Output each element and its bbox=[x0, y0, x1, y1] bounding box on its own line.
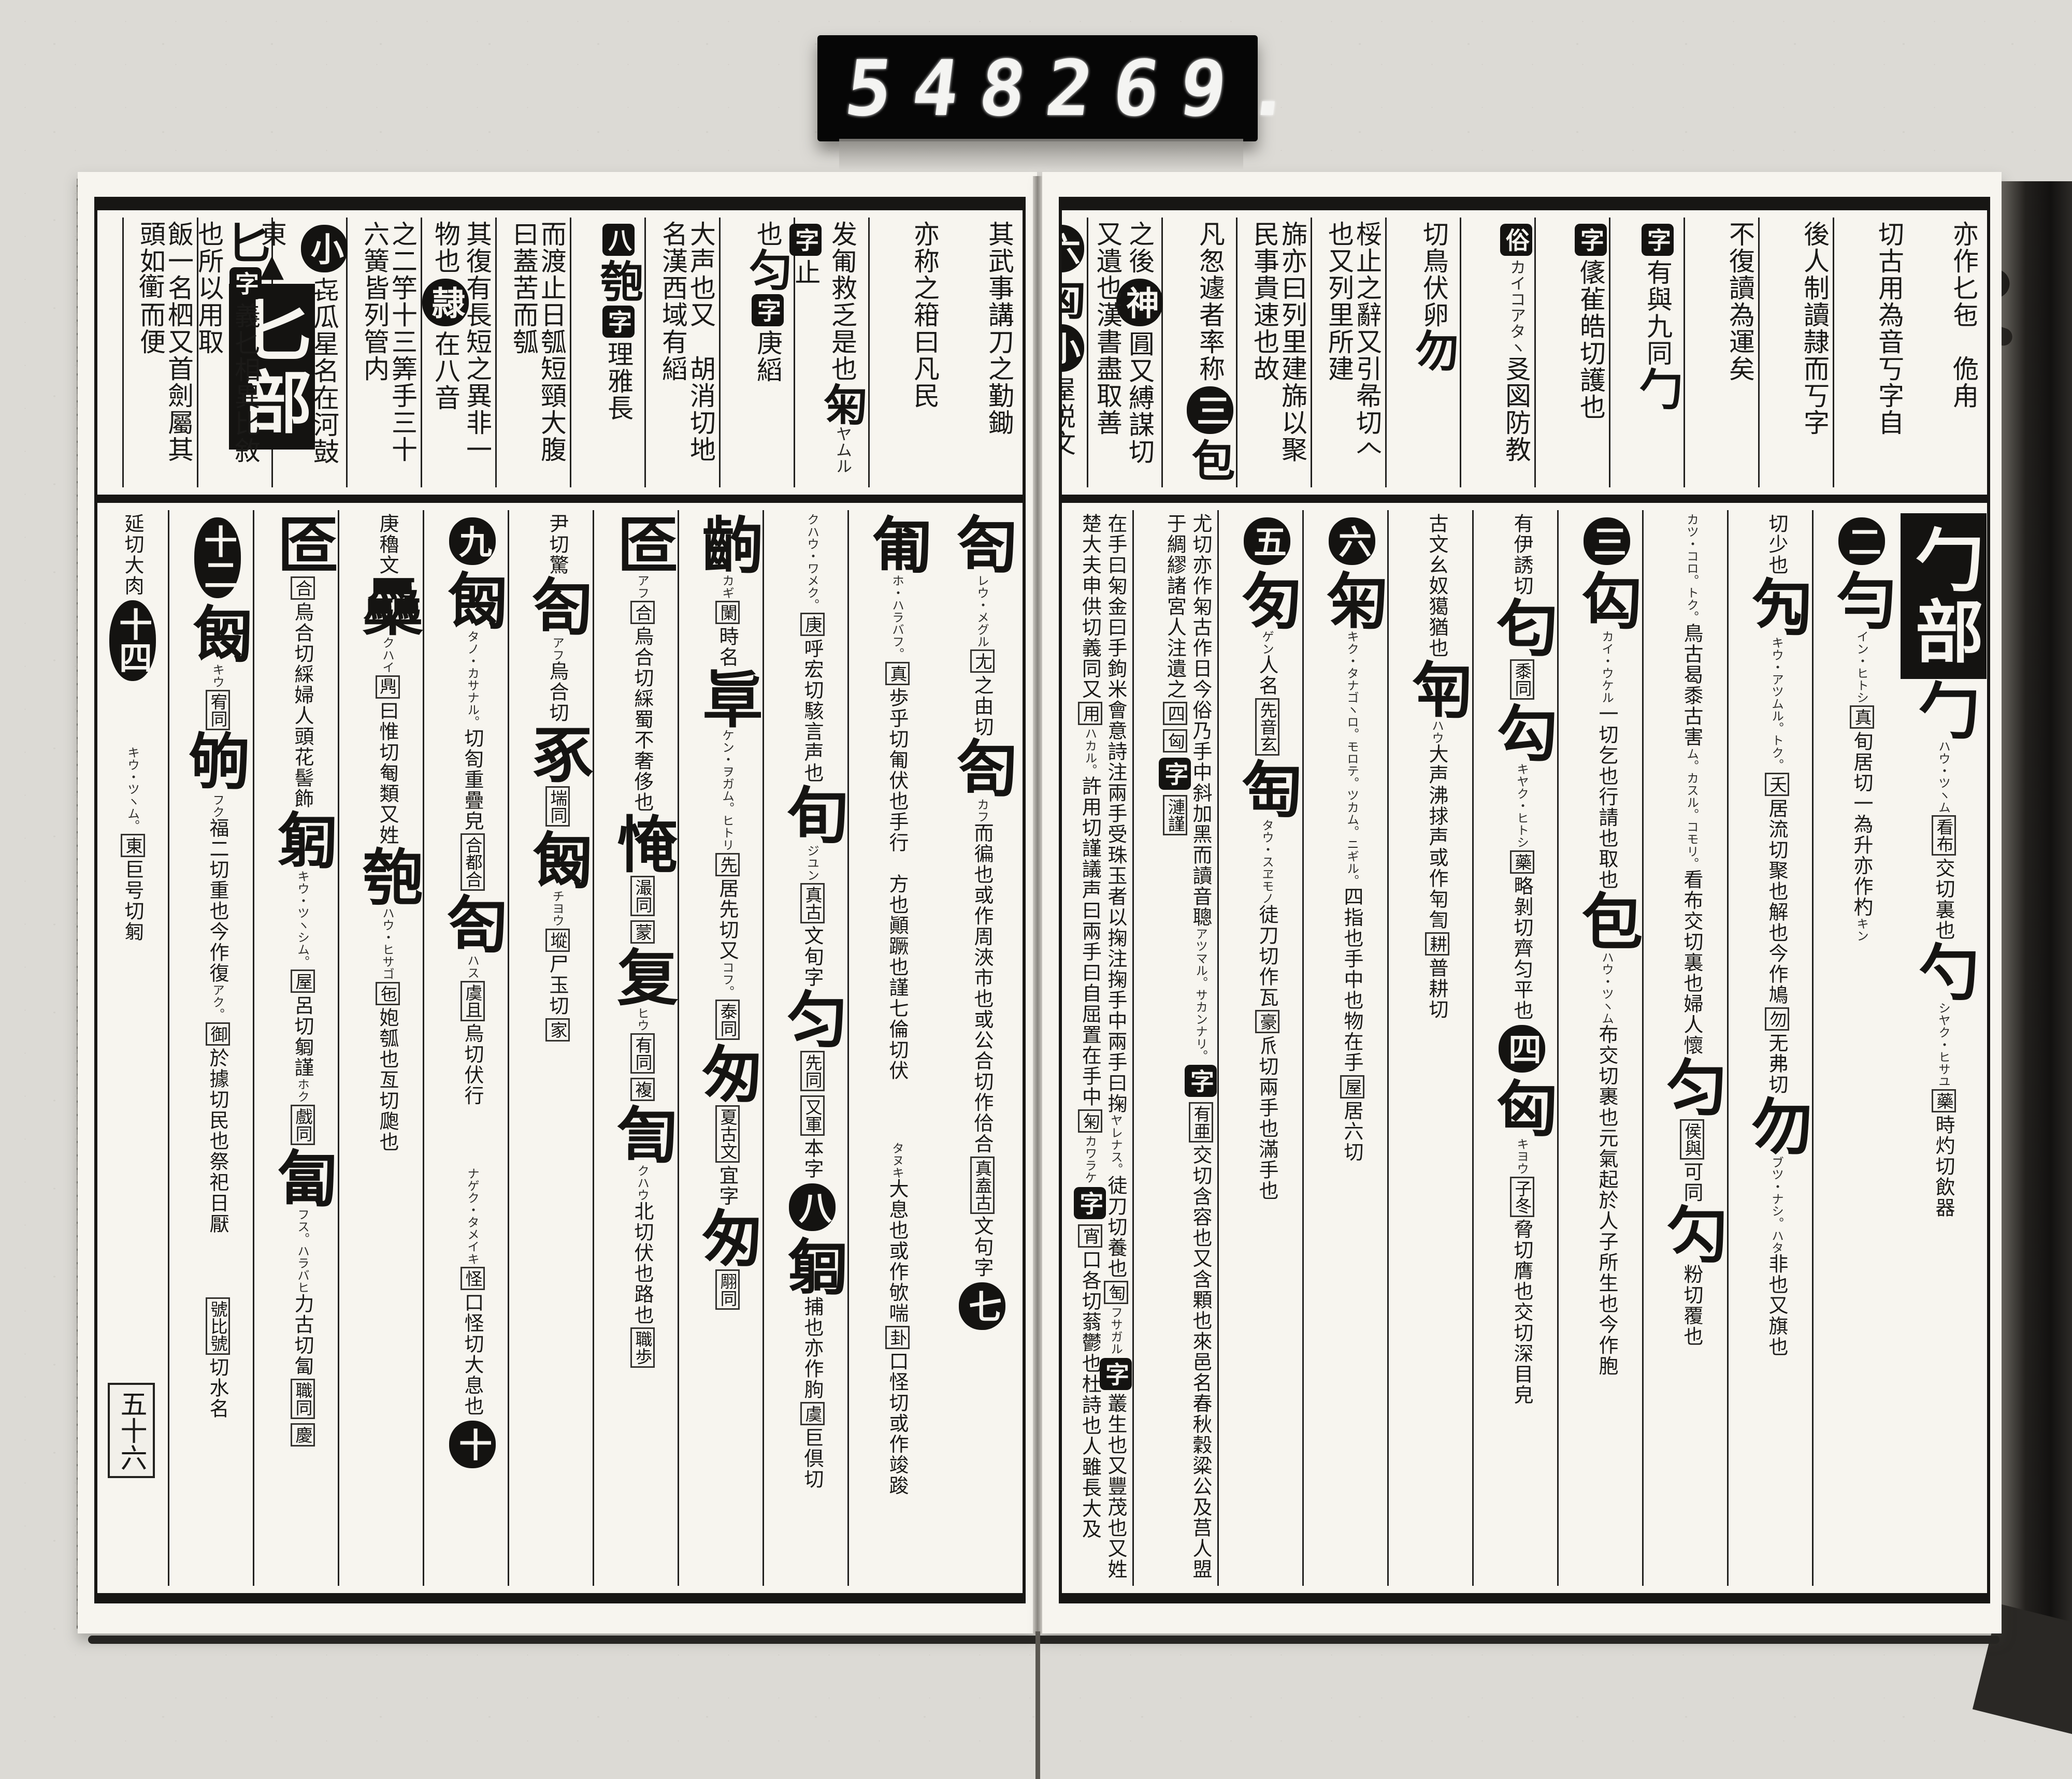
headword: 匊 bbox=[817, 382, 868, 426]
text-column: 亦称之䈤曰凡民 bbox=[868, 218, 943, 487]
kana-gloss: ハウ bbox=[1430, 719, 1444, 744]
folio-number: 五十六 bbox=[108, 1383, 155, 1478]
kana-gloss: ヤムル bbox=[833, 426, 852, 474]
gloss-text: 庚穭文 bbox=[376, 513, 399, 575]
kana-gloss: アフ bbox=[550, 637, 565, 661]
kana-gloss: レウ・メグル bbox=[975, 574, 989, 647]
text-column: 字㒅雈皓切護也 bbox=[1534, 218, 1609, 487]
headword: 包 bbox=[1185, 438, 1235, 482]
kana-gloss: キウ・ツヽシム。 bbox=[295, 870, 310, 967]
gloss-text: 有與九同 bbox=[1643, 259, 1673, 367]
text-column: 十二匓キウ宥同𠣪フク福二切重也今作復アク。御於據切民也祭祀日厭𠤂號比號切水名 bbox=[168, 510, 253, 1586]
stroke-count-badge: 小 bbox=[301, 225, 348, 272]
gloss-text: 飯一名柶又首劍 bbox=[164, 221, 194, 409]
gloss-text: 口怪切大息也 bbox=[461, 1292, 484, 1416]
gloss-text: 許用切謹議声曰兩手曰自屈置在手中 bbox=[1078, 776, 1101, 1107]
headword: 旬 bbox=[776, 783, 848, 844]
variant-box: 屋 bbox=[291, 970, 315, 993]
gloss-text: 其武事講刀之勤鋤 bbox=[984, 221, 1014, 436]
text-column: 大声也又𦉻胡消切地名漢西域有縚 bbox=[644, 218, 719, 487]
gloss-text: 其復有長短之異非 bbox=[462, 221, 492, 436]
variant-box: 㙐同 bbox=[545, 786, 570, 827]
stroke-count-badge: 十四 bbox=[109, 600, 156, 681]
kana-gloss: タノ・カサナル。 bbox=[465, 630, 480, 728]
gloss-text: 布交切裹也元氣起於人子所生也今作胞 bbox=[1595, 1024, 1618, 1377]
variant-box: 耕 bbox=[1425, 932, 1449, 956]
text-column: 二勻イン・ヒトシ真旬居切一為升亦作杓キン bbox=[1812, 510, 1897, 1586]
gloss-text: 之二竽十三筭手三 bbox=[387, 221, 418, 436]
left-page-bottom-register: 匌レウ・メグル尢之由切匌カフ而徧也或作周浹市也或公合切作佮合真盍古文句字七匍ホ・… bbox=[97, 503, 1023, 1593]
gloss-text: 歩乎切匍伏也 bbox=[886, 687, 909, 812]
gloss-text: 旬居切一 bbox=[1850, 731, 1873, 814]
right-page-top-register: 亦作𠤎㐌𠤕佹甪切古用為音丂字自後人制讀隷而丂字不復讀為運矣字有與九同勹字㒅雈皓切… bbox=[1062, 210, 1987, 503]
kana-gloss: フサガル bbox=[1109, 1306, 1123, 1355]
kana-gloss: ジユン bbox=[805, 844, 819, 881]
variant-box: 泰同 bbox=[715, 1000, 740, 1040]
variant-box: 宥同 bbox=[206, 690, 230, 730]
gloss-text: 不復讀為運矣 bbox=[1725, 221, 1755, 382]
right-page: 亦作𠤎㐌𠤕佹甪切古用為音丂字自後人制讀隷而丂字不復讀為運矣字有與九同勹字㒅雈皓切… bbox=[1042, 172, 2002, 1633]
gloss-text: 婦人頭花髻飾 bbox=[291, 685, 314, 809]
kana-gloss: ム。カスル。コモリ。 bbox=[1685, 747, 1699, 870]
gloss-text: 徒刀切養也 bbox=[1104, 1175, 1127, 1279]
gloss-text: 受珠玉者以掬注掬手中兩手曰掬 bbox=[1104, 824, 1127, 1114]
variant-box: 又軍 bbox=[800, 1095, 825, 1136]
gloss-text: 屋説文 bbox=[1062, 376, 1076, 457]
text-column: 切古用為音丂字自 bbox=[1833, 218, 1907, 487]
kana-gloss: キヤク・ヒトシ bbox=[1515, 763, 1529, 848]
label-badge: 俗 bbox=[1500, 224, 1532, 256]
gloss-text: 尤切亦作匊古作日 bbox=[1189, 513, 1212, 679]
variant-box: 用 bbox=[1078, 702, 1102, 725]
gloss-text: 力古切匐 bbox=[291, 1294, 314, 1377]
text-column: 有伊誘切匂黍同勾キヤク・ヒトシ藥略剝切齊匀平也四匈キヨウ子冬脅切膺也交切深目皃 bbox=[1472, 510, 1557, 1586]
variant-box: 㵊同 bbox=[630, 876, 655, 916]
headword: 𠣪 bbox=[182, 732, 253, 793]
variant-box: 四 bbox=[1163, 702, 1187, 725]
text-column: 亦作𠤎㐌𠤕佹甪 bbox=[1907, 218, 1982, 487]
gloss-text: 也人雖長大及 bbox=[1078, 1415, 1101, 1540]
text-column: 桵止之辭又引㣇切𠆢也又列里所建 bbox=[1311, 218, 1385, 487]
kana-gloss: キン bbox=[1854, 917, 1869, 942]
gloss-text: 也 bbox=[753, 221, 783, 248]
right-page-text-block: 亦作𠤎㐌𠤕佹甪切古用為音丂字自後人制讀隷而丂字不復讀為運矣字有與九同勹字㒅雈皓切… bbox=[1059, 197, 1990, 1603]
headword: 匼 bbox=[607, 513, 678, 574]
gloss-text: 之由切 bbox=[971, 675, 994, 737]
headword: 𠣚 bbox=[437, 1106, 508, 1167]
headword: 匓 bbox=[437, 569, 508, 630]
variant-box: 合都合 bbox=[461, 833, 485, 891]
counter-shadow bbox=[839, 139, 1243, 170]
variant-box: 慶 bbox=[291, 1423, 315, 1447]
text-column: 八匏字理雅長 bbox=[570, 218, 644, 487]
kana-gloss: アツマル。サカンナリ。 bbox=[1193, 928, 1208, 1062]
variant-box: 卦 bbox=[885, 1326, 910, 1349]
gloss-text: 旆亦曰列里建旆 bbox=[1277, 221, 1307, 409]
gloss-text: 粉切覆也 bbox=[1680, 1264, 1703, 1347]
gloss-text: 庚縚 bbox=[753, 329, 783, 383]
gloss-text: 供切義同又 bbox=[1078, 596, 1101, 700]
gloss-text: 福二切重也今作復 bbox=[206, 818, 229, 983]
headword: 𠣫 bbox=[861, 1081, 933, 1142]
gloss-text: 口各切蓊鬱也杜詩 bbox=[1078, 1250, 1101, 1415]
label-badge: 字 bbox=[1185, 1065, 1217, 1097]
gloss-text: 烏合切綵 bbox=[631, 626, 654, 709]
kana-gloss: ケン・ヲガム。ヒトリ bbox=[720, 729, 735, 851]
stroke-count-badge: 六 bbox=[1062, 225, 1084, 272]
headword: 匓 bbox=[182, 602, 253, 663]
stroke-count-badge: 七 bbox=[959, 1282, 1005, 1330]
gloss-text: 今俗乃手中斜加 bbox=[1189, 679, 1212, 824]
text-column: 切少也勼キウ・アツムル。トク。夭居流切聚也解也今作鳩勿无弗切勿ブツ・ナシ。ハタ非… bbox=[1727, 510, 1812, 1586]
headword: 匀 bbox=[1656, 1056, 1728, 1117]
book-bottom-edge bbox=[88, 1636, 1999, 1644]
gloss-text: 為升亦作杓 bbox=[1850, 814, 1873, 917]
variant-box: 真 bbox=[885, 662, 910, 685]
variant-box: 蒙 bbox=[630, 920, 655, 944]
headword: 匏 bbox=[352, 846, 423, 907]
kana-gloss: キヨウ bbox=[1515, 1138, 1529, 1175]
gloss-text: 時名 bbox=[716, 626, 739, 668]
headword: 㤿 bbox=[607, 813, 678, 874]
gloss-text: 理雅長 bbox=[603, 341, 634, 422]
headword: 匕 bbox=[220, 221, 271, 264]
gloss-text: 烏合切 bbox=[546, 661, 569, 723]
headword: 匈 bbox=[1062, 277, 1086, 320]
gloss-text: 手行𠘹方也顚蹶也 bbox=[886, 812, 909, 977]
text-column: 飯一名柶又首劍屬其頭如𧘂而便 bbox=[122, 218, 197, 487]
kana-gloss: クハウ bbox=[635, 1164, 650, 1201]
gloss-text: 而徧也或作周浹市也或 bbox=[971, 823, 994, 1030]
gloss-text: 綢繆諸宮人注遺之 bbox=[1163, 534, 1186, 700]
gloss-text: 切水名 bbox=[206, 1357, 229, 1419]
text-column: 尤切亦作匊古作日今俗乃手中斜加黑而讀音聰アツマル。サカンナリ。字有亜交切含容也又… bbox=[1132, 510, 1217, 1586]
kana-gloss: カイ・ウケル bbox=[1600, 630, 1614, 703]
text-column: 古文幺奴獦猶也匉ハウ大声沸捄声或作匉訇耕普耕切 bbox=[1387, 510, 1472, 1586]
headword: 匋 bbox=[1231, 758, 1303, 819]
gloss-text: 曰惟切匎類又姓 bbox=[376, 701, 399, 846]
variant-box: 先 bbox=[715, 853, 740, 876]
kana-gloss: コフ。 bbox=[720, 961, 735, 998]
variant-box: 複 bbox=[630, 1078, 655, 1101]
gloss-text: 時灼切飲器 bbox=[1932, 1115, 1955, 1218]
variant-box: 黍同 bbox=[1510, 659, 1534, 700]
text-column: 俗カイコアタヽ㕛図防教 bbox=[1460, 218, 1534, 487]
gloss-text: 亦称之䈤曰凡民 bbox=[910, 221, 940, 409]
kana-gloss: チヨウ bbox=[550, 890, 565, 927]
gloss-text: 巨号切匑 bbox=[121, 859, 144, 942]
gloss-text: 宜字 bbox=[716, 1165, 739, 1206]
gloss-text: 交切裏也 bbox=[1932, 858, 1955, 941]
text-column: 其武事講刀之勤鋤 bbox=[943, 218, 1017, 487]
gloss-text: 桵止之辭又引㣇 bbox=[1352, 221, 1382, 409]
text-column: 九匓タノ・カサナル。切匌重疊皃合都合匌ハス虞且烏切伏行𠣚ナゲク・タメイキ怪口怪切… bbox=[423, 510, 508, 1586]
stroke-count-badge: 十 bbox=[449, 1421, 496, 1468]
variant-box: 藥 bbox=[1510, 850, 1534, 874]
gloss-text: 居先切又 bbox=[716, 878, 739, 961]
scanned-page-background: 548 269. 其武事講刀之勤鋤亦称之䈤曰凡民发匍救乏是也匊ヤムル字止也匀字庚… bbox=[0, 0, 2072, 1779]
headword: 勹 bbox=[1908, 679, 1979, 740]
text-column: 六匊キク・タナゴヽロ。モロテ。ツカム。ニギル。四指也手中也物在手屋居六切 bbox=[1302, 510, 1387, 1586]
gloss-text: 徒刀切作瓦 bbox=[1256, 904, 1278, 1008]
radical-header: 勹部 bbox=[1901, 513, 1987, 679]
variant-box: 先同 bbox=[800, 1051, 825, 1091]
kana-gloss: ヒウ bbox=[635, 1007, 650, 1031]
gloss-text: 㕛図防教 bbox=[1501, 355, 1531, 463]
right-page-bottom-register: 勹部勹ハウ・ツヽム看布交切裏也勺シヤク・ヒサユ藥時灼切飲器二勻イン・ヒトシ真旬居… bbox=[1062, 503, 1987, 1593]
kana-gloss: キク・タナゴヽロ。モロテ。ツカム。ニギル。 bbox=[1345, 630, 1359, 887]
counter-digits-left: 548 bbox=[841, 50, 1051, 127]
gloss-text: 民也祭祀日厭 bbox=[206, 1110, 229, 1234]
gloss-text: 烏切伏行 bbox=[461, 1023, 484, 1106]
text-column: クハウ・ワメク。庚呼宏切駭言声也旬ジユン真古文旬字匀先同又軍本字八匔捕也亦作胊虞… bbox=[762, 510, 847, 1586]
text-column: 匼アフ合烏合切綵蜀不奢侈也㤿㵊同蒙复ヒウ有同複訇クハウ北切伏也路也職歩 bbox=[593, 510, 678, 1586]
text-column: 之二竽十三筭手三十六簧皆列管内 bbox=[346, 218, 421, 487]
headword: 𠤄 bbox=[97, 685, 168, 746]
variant-box: 豪 bbox=[1255, 1010, 1279, 1033]
label-badge: 字 bbox=[789, 224, 822, 256]
text-column: 匍ホ・ハラバフ。真歩乎切匍伏也手行𠘹方也顚蹶也謹七倫切伏𠣫タヌキ大息也或作欨喘卦… bbox=[847, 510, 932, 1586]
kana-gloss: ハス bbox=[465, 954, 480, 978]
headword: 匂 bbox=[1486, 596, 1558, 657]
gloss-text: 義𠤎相 bbox=[231, 302, 261, 383]
gloss-text: 公合切作佮合 bbox=[971, 1030, 994, 1154]
variant-box: 真 bbox=[1850, 705, 1874, 729]
headword: 匓 bbox=[522, 829, 593, 890]
text-column: 其復有長短之異非一物也隷在八音 bbox=[421, 218, 495, 487]
gloss-text: 延切大肉 bbox=[121, 513, 144, 596]
variant-box: 勿 bbox=[1765, 1007, 1789, 1031]
gloss-text: 而渡止日瓠短頸大 bbox=[537, 221, 567, 436]
headword: 匀 bbox=[742, 248, 793, 291]
variant-box: 㙡 bbox=[545, 929, 570, 952]
gloss-text: 𨳲浦對切入名春曰督 bbox=[376, 1152, 399, 1339]
variant-box: 㐌 bbox=[376, 982, 400, 1005]
gloss-text: 㚿瓠也亙切瓟也 bbox=[376, 1007, 399, 1152]
gloss-text: 㘣又縛謀切 bbox=[1125, 330, 1155, 465]
gloss-text: 鳥古曷黍古害 bbox=[1680, 623, 1703, 747]
gloss-text: 謹七倫切伏 bbox=[886, 977, 909, 1081]
variant-box: 職同 bbox=[291, 1379, 315, 1419]
variant-box: 闌 bbox=[715, 601, 740, 624]
gloss-text: 蜀不奢侈也 bbox=[631, 709, 654, 813]
kana-gloss: タヌキ bbox=[890, 1142, 904, 1179]
headword: 匌 bbox=[946, 513, 1018, 574]
gloss-text: 呂切匔謹 bbox=[291, 995, 314, 1078]
headword: 匼 bbox=[267, 513, 338, 574]
variant-box: 職歩 bbox=[630, 1327, 655, 1368]
variant-box: 宵 bbox=[1078, 1224, 1102, 1248]
kana-gloss: ホク bbox=[295, 1078, 310, 1102]
label-badge: 字 bbox=[602, 306, 635, 338]
gloss-text: 烏合切綵 bbox=[291, 602, 314, 685]
text-column: カツ・コロ。トク。鳥古曷黍古害ム。カスル。コモリ。看布交切裏也婦人懷匀侯與可同勽… bbox=[1642, 510, 1727, 1586]
gloss-text: 普耕切 bbox=[1426, 958, 1448, 1020]
gloss-text: 㒅雈皓切護也 bbox=[1576, 259, 1606, 421]
variant-box: 夭 bbox=[1765, 773, 1789, 796]
text-column: 旆亦曰列里建旆以聚民事貴速也故 bbox=[1236, 218, 1311, 487]
variant-box: 翢同 bbox=[715, 1269, 740, 1310]
text-column: 而渡止日瓠短頸大腹曰蓋苦而瓠 bbox=[495, 218, 570, 487]
variant-box: 虞 bbox=[800, 1402, 825, 1425]
text-column: 之後神㘣又縛謀切又遺也漢書盡取善 bbox=[1087, 218, 1161, 487]
variant-box: 家 bbox=[545, 1018, 570, 1042]
stroke-count-badge: 二 bbox=[1838, 517, 1885, 565]
headword: 匏 bbox=[593, 259, 644, 302]
kana-gloss: シヤク・ヒサユ bbox=[1936, 1002, 1951, 1087]
headword: 匌 bbox=[437, 893, 508, 954]
text-column: 勹部勹ハウ・ツヽム看布交切裏也勺シヤク・ヒサユ藥時灼切飲器 bbox=[1897, 510, 1982, 1586]
text-column: 後人制讀隷而丂字 bbox=[1758, 218, 1833, 487]
headword: 豖 bbox=[522, 723, 593, 784]
headword: 匈 bbox=[1486, 1077, 1558, 1138]
gloss-text: 切匌重疊皃 bbox=[461, 728, 484, 831]
headword: 㔬 bbox=[692, 668, 763, 729]
gloss-text: 奴獦猶也 bbox=[1426, 575, 1448, 658]
headword: 匉 bbox=[1401, 658, 1473, 719]
headword: 匆 bbox=[692, 1206, 763, 1267]
kana-gloss: ホ・ハラバフ。 bbox=[890, 574, 904, 660]
variant-box: 夏古文 bbox=[715, 1105, 740, 1163]
gloss-text: 古文幺 bbox=[1426, 513, 1448, 575]
kana-gloss: タウ・スヱモノ bbox=[1260, 819, 1274, 904]
kana-gloss: イン・ヒトシ bbox=[1854, 630, 1869, 703]
headword: 匇 bbox=[1231, 569, 1303, 630]
gloss-text: 大息也或作欨喘 bbox=[886, 1179, 909, 1324]
gloss-text: 大声沸捄声或作匉訇 bbox=[1426, 744, 1448, 930]
variant-box: 子冬 bbox=[1510, 1177, 1534, 1217]
text-column: 三匃カイ・ウケル一切乞也行請也取也包ハウ・ツヽム布交切裹也元氣起於人子所生也今作… bbox=[1557, 510, 1642, 1586]
variant-box: 號比號 bbox=[206, 1297, 230, 1355]
text-column: 切鳥伏卵勿 bbox=[1385, 218, 1460, 487]
kana-gloss: カワラケ bbox=[1083, 1135, 1097, 1183]
label-badge: 字 bbox=[1100, 1358, 1132, 1390]
spine-crack bbox=[1035, 1631, 1040, 1779]
variant-box: 真盍古 bbox=[970, 1156, 995, 1214]
variant-box: 屋 bbox=[1340, 1075, 1364, 1098]
headword: 复 bbox=[607, 946, 678, 1007]
gloss-text: 口怪切或作竣踆 bbox=[886, 1351, 909, 1496]
gloss-text: 切古用為音丂字自 bbox=[1874, 221, 1904, 436]
gloss-text: 略剝切齊匀平也 bbox=[1510, 876, 1533, 1021]
headword: 𠤂 bbox=[182, 1234, 253, 1295]
text-column: 不復讀為運矣 bbox=[1683, 218, 1758, 487]
label-badge: 字 bbox=[752, 294, 784, 326]
gloss-text: 於據切 bbox=[206, 1048, 229, 1110]
variant-box: 御 bbox=[206, 1022, 230, 1046]
headword: 勿 bbox=[1408, 328, 1459, 372]
stroke-count-badge: 神 bbox=[1116, 279, 1163, 326]
label-badge: 字 bbox=[229, 267, 262, 299]
variant-box: 尢 bbox=[970, 649, 995, 673]
variant-box: 匋 bbox=[1104, 1281, 1128, 1304]
gloss-text: 在手曰匊金曰手鉤米會意詩注兩手 bbox=[1104, 513, 1127, 824]
text-column: 庚穭文䯂クハイ𪔂曰惟切匎類又姓匏ハウ・ヒサゴ㐌㚿瓠也亙切瓟也𨳲浦對切入名春曰督 bbox=[338, 510, 423, 1586]
gloss-text: 尹切驚 bbox=[546, 513, 569, 575]
variant-box: 匈 bbox=[1163, 729, 1187, 753]
variant-box: 合 bbox=[630, 601, 655, 624]
headword: 勹 bbox=[1632, 367, 1683, 410]
headword: 勼 bbox=[1741, 575, 1812, 637]
variant-box: 戲同 bbox=[291, 1105, 315, 1145]
stroke-count-badge: 六 bbox=[1329, 517, 1375, 565]
gloss-text: 切少也 bbox=[1765, 513, 1788, 575]
text-column: 齣カギ闌時名㔬ケン・ヲガム。ヒトリ先居先切又コフ。泰同匆夏古文宜字匆翢同 bbox=[678, 510, 762, 1586]
gloss-text: 巨倶切 bbox=[801, 1427, 824, 1489]
kana-gloss: フク bbox=[210, 793, 225, 818]
left-page-text-block: 其武事講刀之勤鋤亦称之䈤曰凡民发匍救乏是也匊ヤムル字止也匀字庚縚大声也又𦉻胡消切… bbox=[94, 197, 1026, 1603]
headword: 勽 bbox=[1656, 1203, 1728, 1264]
headword: 勺 bbox=[1908, 941, 1979, 1002]
kana-gloss: キウ・ツヽム。 bbox=[125, 746, 140, 832]
stroke-count-badge: 八 bbox=[789, 1183, 836, 1231]
variant-box: 先音玄 bbox=[1255, 698, 1279, 756]
gloss-text: 本字 bbox=[801, 1138, 824, 1179]
kana-gloss: カフ bbox=[975, 798, 989, 822]
variant-box: 匊 bbox=[1078, 1109, 1102, 1133]
left-page: 其武事講刀之勤鋤亦称之䈤曰凡民发匍救乏是也匊ヤムル字止也匀字庚縚大声也又𦉻胡消切… bbox=[78, 172, 1037, 1633]
gloss-text: 人名 bbox=[1256, 655, 1278, 696]
gloss-text: 又遺也漢書盡取善 bbox=[1092, 221, 1123, 436]
stroke-count-badge: 三 bbox=[1584, 517, 1630, 565]
headword: 匌 bbox=[946, 737, 1018, 798]
headword: 齣 bbox=[692, 513, 763, 574]
variant-box: 侯與 bbox=[1680, 1119, 1704, 1160]
gloss-text: 北切伏也路也 bbox=[631, 1201, 654, 1325]
label-badge: 字 bbox=[1575, 224, 1607, 256]
variant-box: 真古 bbox=[800, 883, 825, 923]
text-column: 也匀字庚縚 bbox=[719, 218, 794, 487]
gloss-text: 看布交切裏也婦人懷 bbox=[1680, 870, 1703, 1056]
gloss-text: 切鳥伏卵 bbox=[1419, 221, 1449, 328]
stroke-count-badge: 四 bbox=[1499, 1025, 1545, 1073]
kana-gloss: ハウ・ツヽム bbox=[1936, 740, 1951, 813]
headword: 匀 bbox=[776, 988, 848, 1049]
kana-gloss: キウ・アツムル。トク。 bbox=[1769, 637, 1784, 771]
book-spine bbox=[1033, 176, 1042, 1634]
gloss-text: 脅切膺也交切深目皃 bbox=[1510, 1219, 1533, 1406]
gloss-text: 止 bbox=[790, 259, 821, 286]
text-column: 凡怱遽者率称三包 bbox=[1161, 218, 1236, 487]
gloss-text: 凡怱遽者率称 bbox=[1195, 221, 1225, 382]
text-column: 尹切驚匌アフ烏合切豖㙐同匓チヨウ㙡尸玉切家 bbox=[508, 510, 593, 1586]
variant-box: 漣謹 bbox=[1163, 795, 1187, 835]
headword: 匐 bbox=[267, 1147, 338, 1208]
headword: 䯂 bbox=[352, 575, 423, 637]
headword: 匍 bbox=[861, 513, 933, 574]
kana-gloss: ハウ・ヒサゴ bbox=[380, 907, 395, 980]
gloss-text: 𠂢切兩手也滿手也 bbox=[1256, 1035, 1278, 1201]
headword: 包 bbox=[1571, 890, 1643, 951]
text-column: 五匇ゲン人名先音玄匋タウ・スヱモノ徒刀切作瓦豪𠂢切兩手也滿手也 bbox=[1217, 510, 1302, 1586]
text-column: 匌レウ・メグル尢之由切匌カフ而徧也或作周浹市也或公合切作佮合真盍古文句字七 bbox=[932, 510, 1017, 1586]
gloss-text: 尸玉切 bbox=[546, 954, 569, 1016]
kana-gloss: カイコアタヽ bbox=[1507, 259, 1526, 355]
variant-box: 虞且 bbox=[461, 981, 485, 1021]
gloss-text: 大声也又𦉻胡消切 bbox=[686, 221, 716, 436]
label-badge: 八 bbox=[602, 224, 635, 256]
headword: 匑 bbox=[267, 809, 338, 870]
gloss-text: 四指也手中也物在手 bbox=[1341, 887, 1363, 1073]
kana-gloss: キウ bbox=[210, 663, 225, 688]
stroke-count-badge: 隷 bbox=[422, 279, 469, 326]
text-column: 六匈小屋説文 bbox=[1062, 218, 1087, 487]
headword: 訇 bbox=[607, 1103, 678, 1164]
kana-gloss: アフ bbox=[635, 574, 650, 599]
text-column: 发匍救乏是也匊ヤムル字止 bbox=[794, 218, 868, 487]
kana-gloss: クハイ bbox=[380, 637, 395, 673]
gloss-text: 黑而讀音聰 bbox=[1189, 824, 1212, 928]
